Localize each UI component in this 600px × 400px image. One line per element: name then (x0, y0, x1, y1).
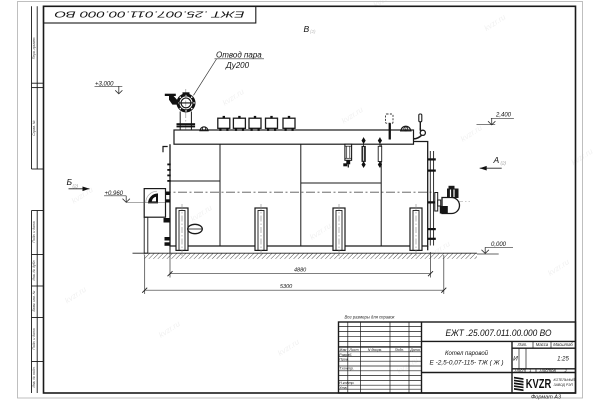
svg-text:Справ. №: Справ. № (32, 120, 36, 136)
svg-text:kvzr.ru: kvzr.ru (276, 337, 301, 358)
svg-text:kvzr.ru: kvzr.ru (157, 319, 182, 340)
svg-text:5300: 5300 (280, 284, 293, 290)
svg-text:kvzr.ru: kvzr.ru (340, 105, 365, 126)
svg-text:И: И (513, 356, 518, 363)
svg-text:Пров.: Пров. (339, 358, 348, 362)
svg-text:(2): (2) (501, 161, 507, 166)
svg-text:Подп.: Подп. (395, 348, 405, 352)
svg-text:N докум.: N докум. (368, 348, 383, 352)
svg-text:4880: 4880 (294, 268, 307, 274)
svg-text:KVZR: KVZR (526, 376, 552, 391)
svg-text:Все размеры для справок: Все размеры для справок (345, 314, 396, 319)
svg-text:kvzr.ru: kvzr.ru (459, 123, 484, 144)
svg-text:Формат А3: Формат А3 (531, 395, 562, 400)
svg-text:Подп. и дата: Подп. и дата (32, 328, 36, 349)
svg-text:Взам. инв. №: Взам. инв. № (32, 290, 36, 311)
svg-text:Лист: Лист (348, 348, 358, 352)
svg-text:В: В (304, 24, 310, 34)
svg-text:Дата: Дата (409, 348, 419, 352)
svg-text:Лит.: Лит. (517, 342, 528, 347)
svg-text:А: А (493, 155, 500, 165)
svg-text:Перв. примен.: Перв. примен. (32, 37, 36, 60)
svg-text:kvzr.ru: kvzr.ru (483, 12, 508, 33)
svg-text:kvzr.ru: kvzr.ru (546, 257, 571, 278)
svg-text:(2): (2) (310, 29, 316, 34)
svg-text:Утв.: Утв. (339, 386, 347, 390)
svg-text:Лист: Лист (514, 368, 527, 373)
svg-text:Т.контр.: Т.контр. (339, 367, 354, 371)
svg-text:ЗАВОД РЭП: ЗАВОД РЭП (554, 383, 574, 387)
svg-text:kvzr.ru: kvzr.ru (221, 87, 246, 108)
svg-text:kvzr.ru: kvzr.ru (63, 285, 88, 306)
svg-text:Изм: Изм (340, 348, 347, 352)
svg-text:2: 2 (564, 368, 568, 373)
svg-text:ЕЖТ .25.007.011.00.000 ВО: ЕЖТ .25.007.011.00.000 ВО (446, 328, 552, 338)
svg-text:Н.контр.: Н.контр. (339, 381, 354, 385)
svg-text:(2): (2) (73, 184, 79, 189)
svg-text:Отвод пара: Отвод пара (216, 50, 262, 59)
svg-text:Инв. № дубл.: Инв. № дубл. (32, 260, 36, 281)
svg-text:Масса: Масса (536, 342, 549, 347)
svg-text:Инв. № подл.: Инв. № подл. (32, 366, 36, 387)
svg-text:1:25: 1:25 (557, 357, 569, 363)
svg-text:КОТЕЛЬНЫЙ: КОТЕЛЬНЫЙ (554, 378, 576, 382)
svg-text:Листов: Листов (539, 368, 557, 373)
svg-text:Котел паровой: Котел паровой (445, 350, 489, 357)
svg-text:kvzr.ru: kvzr.ru (395, 355, 420, 376)
svg-text:Подп. и дата: Подп. и дата (32, 221, 36, 242)
svg-text:kvzr.ru: kvzr.ru (189, 203, 214, 224)
svg-text:Масштаб: Масштаб (553, 342, 573, 347)
svg-text:Ду200: Ду200 (225, 61, 250, 70)
svg-text:Разраб.: Разраб. (339, 353, 352, 357)
svg-text:kvzr.ru: kvzr.ru (308, 221, 333, 242)
svg-text:ЕЖТ .25.007.011.00.000 ВО: ЕЖТ .25.007.011.00.000 ВО (53, 10, 244, 19)
svg-text:Е -2,5-0,07-115- ТЖ ( Ж ): Е -2,5-0,07-115- ТЖ ( Ж ) (430, 360, 504, 366)
svg-text:2,400: 2,400 (495, 113, 512, 119)
